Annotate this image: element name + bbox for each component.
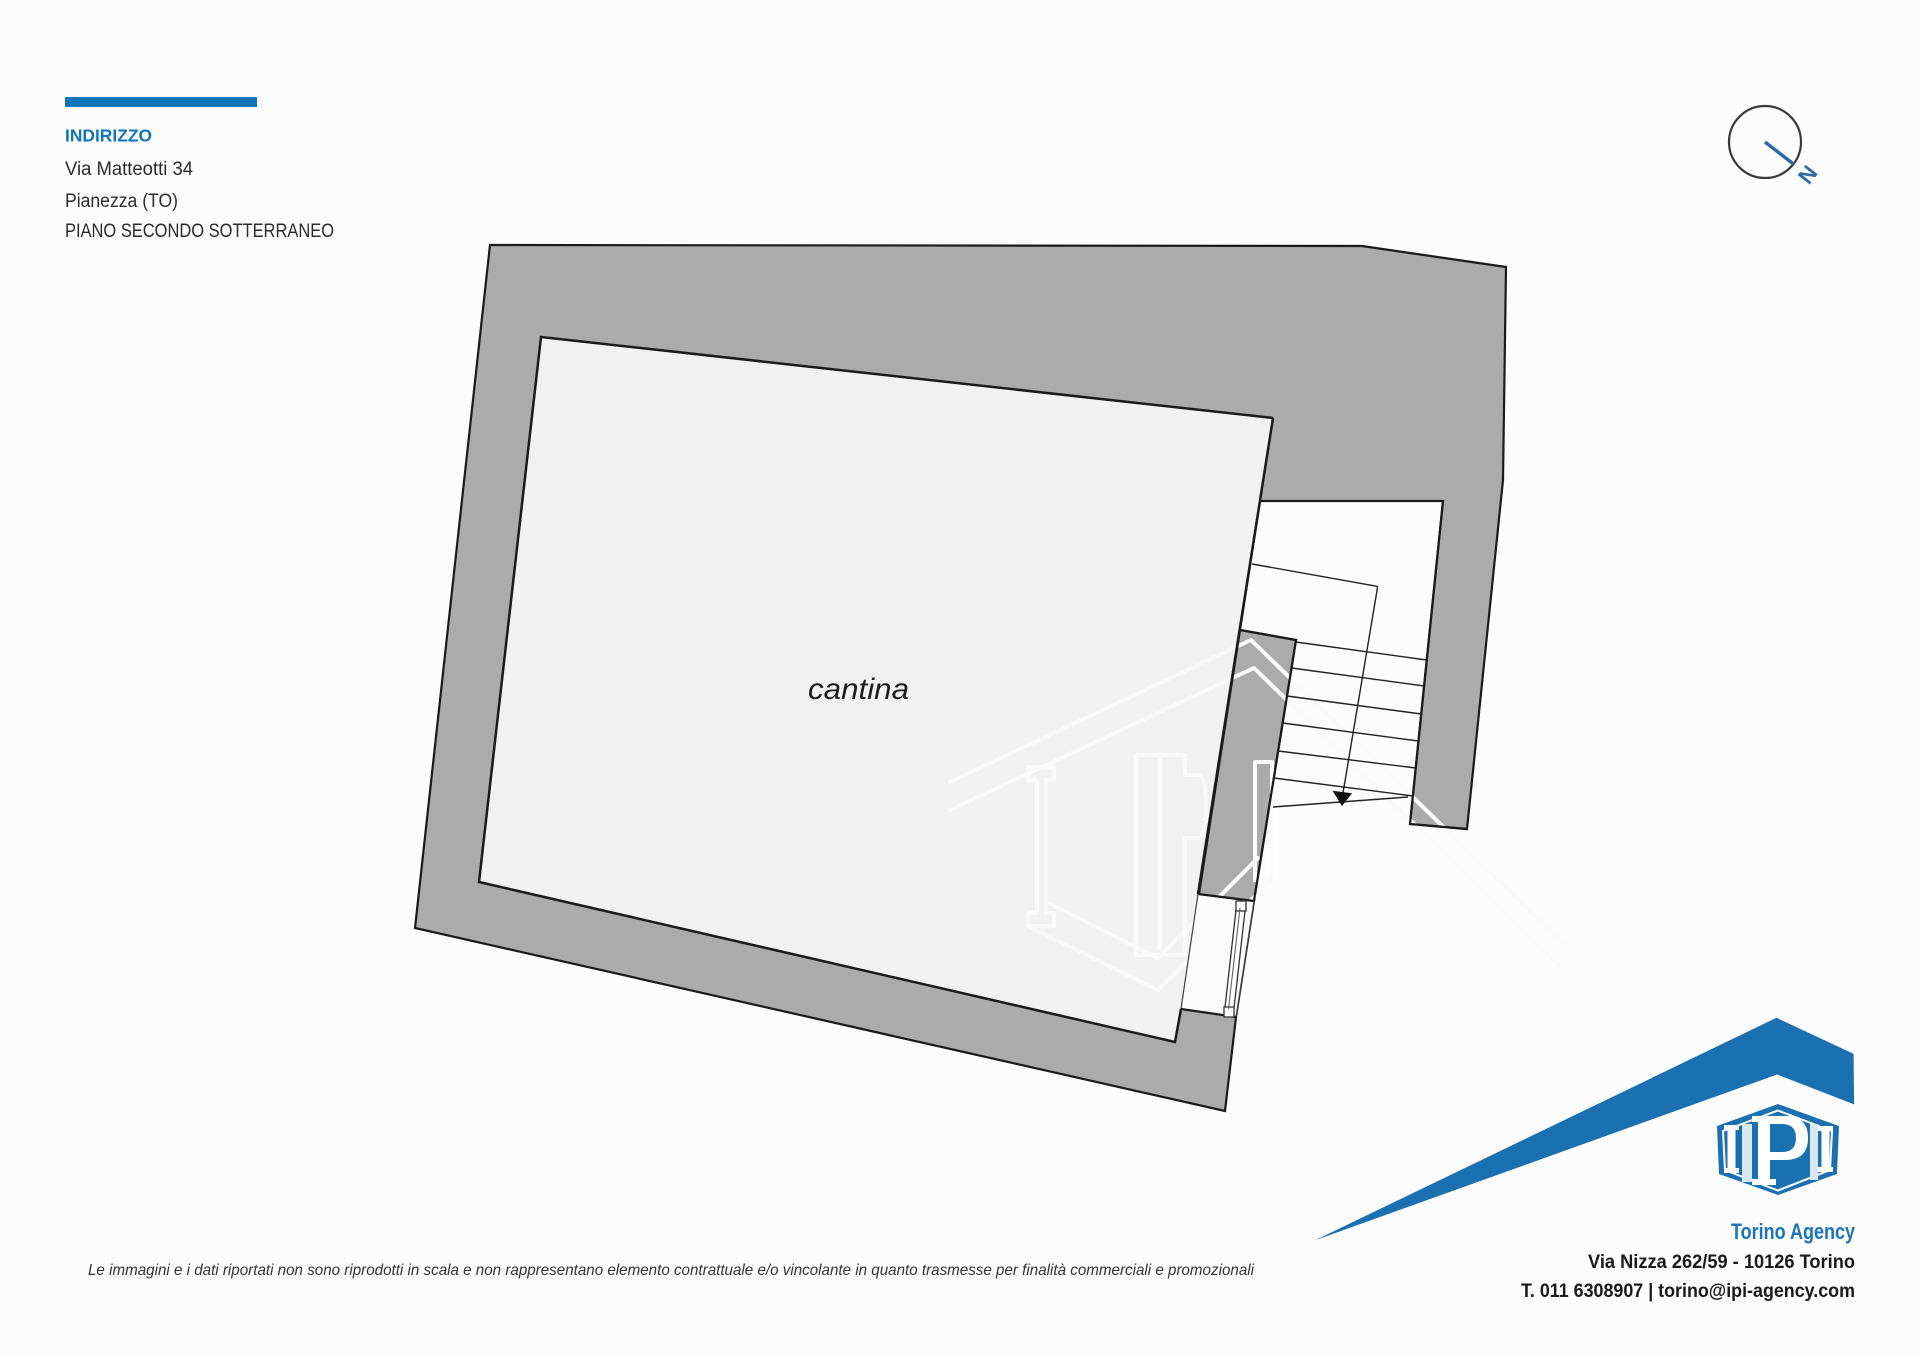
- svg-text:PIANO SECONDO SOTTERRANEO: PIANO SECONDO SOTTERRANEO: [65, 221, 334, 242]
- svg-text:Via Nizza 262/59 - 10126 Torin: Via Nizza 262/59 - 10126 Torino: [1588, 1252, 1855, 1273]
- svg-text:INDIRIZZO: INDIRIZZO: [65, 126, 152, 146]
- svg-text:Via Matteotti 34: Via Matteotti 34: [65, 159, 193, 180]
- svg-text:Torino Agency: Torino Agency: [1731, 1219, 1856, 1244]
- svg-text:Pianezza (TO): Pianezza (TO): [65, 191, 178, 212]
- svg-text:T. 011 6308907 | torino@ipi-ag: T. 011 6308907 | torino@ipi-agency.com: [1521, 1281, 1855, 1302]
- svg-text:Le immagini e i dati riportati: Le immagini e i dati riportati non sono …: [88, 1262, 1254, 1279]
- svg-text:cantina: cantina: [808, 673, 909, 706]
